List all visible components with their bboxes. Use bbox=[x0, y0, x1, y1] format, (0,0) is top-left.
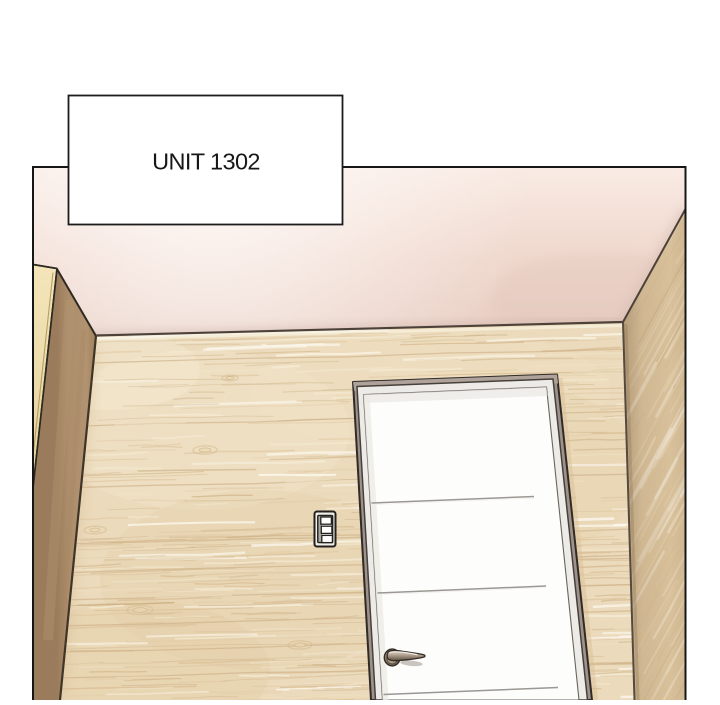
svg-text:UNIT 1302: UNIT 1302 bbox=[152, 149, 260, 175]
